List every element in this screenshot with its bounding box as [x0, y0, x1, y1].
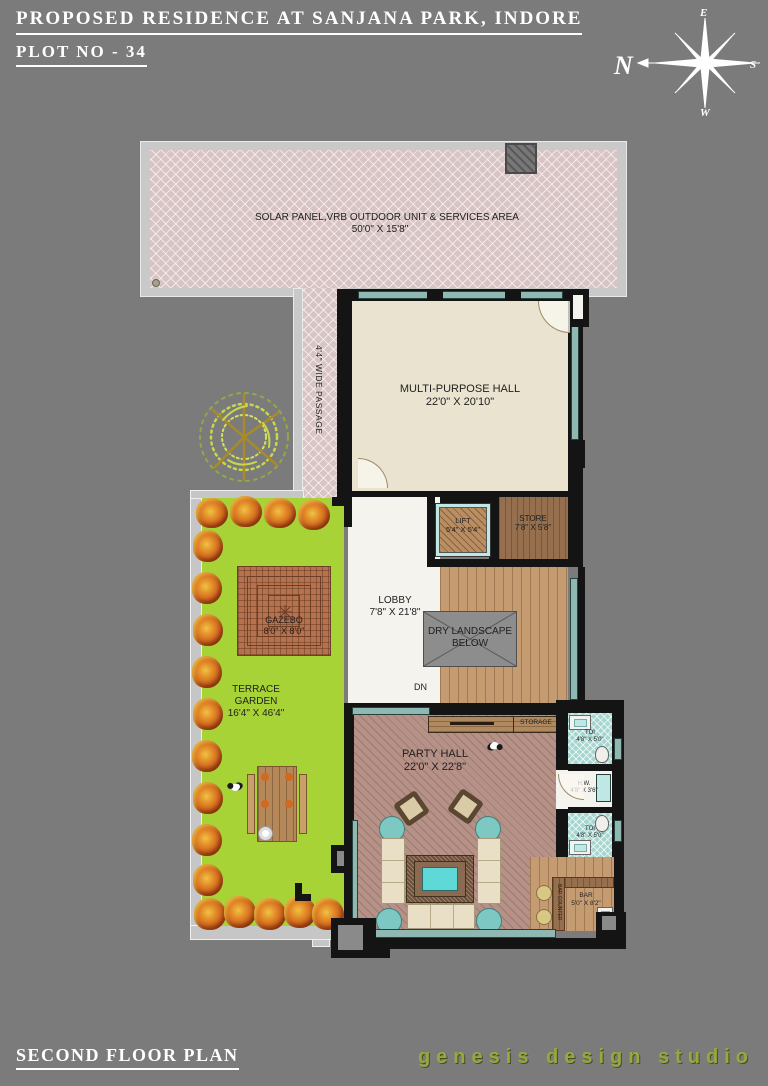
hall-right-window	[571, 325, 579, 440]
shrub-icon	[298, 500, 330, 530]
floor-plan-page: PROPOSED RESIDENCE AT SANJANA PARK, INDO…	[0, 0, 768, 1086]
lift-label: LIFT 5'4" X 5'4"	[435, 517, 491, 535]
shrub-icon	[230, 496, 262, 527]
party-bottom-window	[353, 929, 556, 938]
toilet-divider-wall	[568, 807, 612, 813]
gazebo-center-motif	[238, 567, 332, 657]
shrub-icon	[193, 782, 223, 814]
toilet-top-label: TOI 4'8" X 5'0"	[566, 730, 614, 744]
sofa	[407, 904, 475, 929]
shrub-icon	[193, 530, 223, 562]
passage-label: 4'4" WIDE PASSAGE	[314, 345, 324, 435]
floor-plan-title: SECOND FLOOR PLAN	[16, 1045, 239, 1070]
party-left-window	[352, 820, 358, 925]
coffee-table	[422, 867, 458, 891]
hall-niche	[573, 295, 583, 319]
shrub-icon	[224, 896, 256, 928]
store-label: STORE 7'8" X 5'8"	[500, 514, 566, 533]
page-title: PROPOSED RESIDENCE AT SANJANA PARK, INDO…	[16, 8, 582, 35]
shrub-icon	[264, 498, 296, 528]
bench	[299, 774, 307, 834]
compass-e-label: E	[699, 7, 707, 19]
toilet-icon	[595, 746, 609, 763]
gazebo-deck	[237, 566, 331, 656]
shrub-icon	[192, 656, 222, 688]
gazebo-label: GAZEBO 8'0" X 8'0"	[224, 615, 344, 636]
lift-wall	[427, 497, 435, 565]
hall-label: MULTI-PURPOSE HALL 22'0" X 20'10"	[360, 383, 560, 409]
shrub-icon	[192, 740, 222, 772]
toilet-bottom-label: TOI 4'8" X 5'0"	[566, 826, 614, 840]
store-bottom-wall	[427, 559, 583, 567]
party-hall-label: PARTY HALL 22'0" X 22'8"	[360, 748, 510, 774]
compass-icon: N E S W	[608, 6, 760, 118]
shrub-icon	[254, 898, 286, 930]
shrub-icon	[193, 698, 223, 730]
bar-stool	[536, 909, 552, 925]
store-right-wall	[568, 497, 583, 567]
toilet-window	[614, 738, 622, 760]
dn-label: DN	[414, 682, 427, 693]
compass-s-label: S	[750, 59, 756, 71]
plate	[261, 800, 269, 808]
entry-stair-core	[338, 925, 363, 950]
washbasin-icon	[569, 715, 591, 730]
studio-logo: genesis design studio	[418, 1046, 754, 1069]
sofa	[381, 838, 405, 904]
compass-n-label: N	[613, 51, 634, 80]
hall-wall-jog	[568, 440, 585, 468]
toilet-window	[614, 820, 622, 842]
toilet-divider-wall	[568, 764, 612, 771]
bench	[247, 774, 255, 834]
roof-hatch-block	[505, 143, 537, 174]
stair-right-wall	[578, 567, 585, 707]
garden-corner-wall	[344, 497, 352, 527]
garden-l-wall	[295, 894, 311, 901]
window-mullion	[505, 289, 521, 301]
dry-landscape-label: DRY LANDSCAPE BELOW	[423, 626, 517, 650]
column-dot	[152, 279, 160, 287]
shrub-icon	[192, 572, 222, 604]
bar-label: BAR 5'0" X 8'2"	[562, 892, 610, 907]
tree-icon	[193, 385, 295, 489]
bar-stool	[536, 885, 552, 901]
corner-core	[602, 916, 616, 930]
shrub-icon	[194, 898, 226, 930]
shrub-icon	[193, 864, 223, 896]
bar-counter-label: BAR COUNTER	[555, 884, 561, 920]
window-mullion	[427, 289, 443, 301]
compass-w-label: W	[700, 107, 711, 118]
shrub-icon	[196, 498, 228, 528]
dog-bowl	[258, 826, 273, 841]
lobby-label: LOBBY 7'8" X 21'8"	[352, 595, 438, 619]
washbasin-icon	[569, 840, 591, 855]
shrub-icon	[193, 614, 223, 646]
storage-label: STORAGE	[514, 719, 558, 727]
plot-number: PLOT NO - 34	[16, 42, 147, 67]
plate	[261, 773, 269, 781]
paver	[312, 939, 330, 947]
plate	[285, 773, 293, 781]
plate	[285, 800, 293, 808]
shrub-icon	[192, 824, 222, 856]
solar-area-label: SOLAR PANEL,VRB OUTDOOR UNIT & SERVICES …	[255, 212, 505, 236]
party-top-window	[352, 707, 430, 715]
stair-right-window	[570, 578, 578, 700]
entry-step	[368, 944, 390, 958]
sofa	[477, 838, 501, 904]
console-line	[450, 722, 494, 725]
hall-top-window	[358, 291, 563, 299]
